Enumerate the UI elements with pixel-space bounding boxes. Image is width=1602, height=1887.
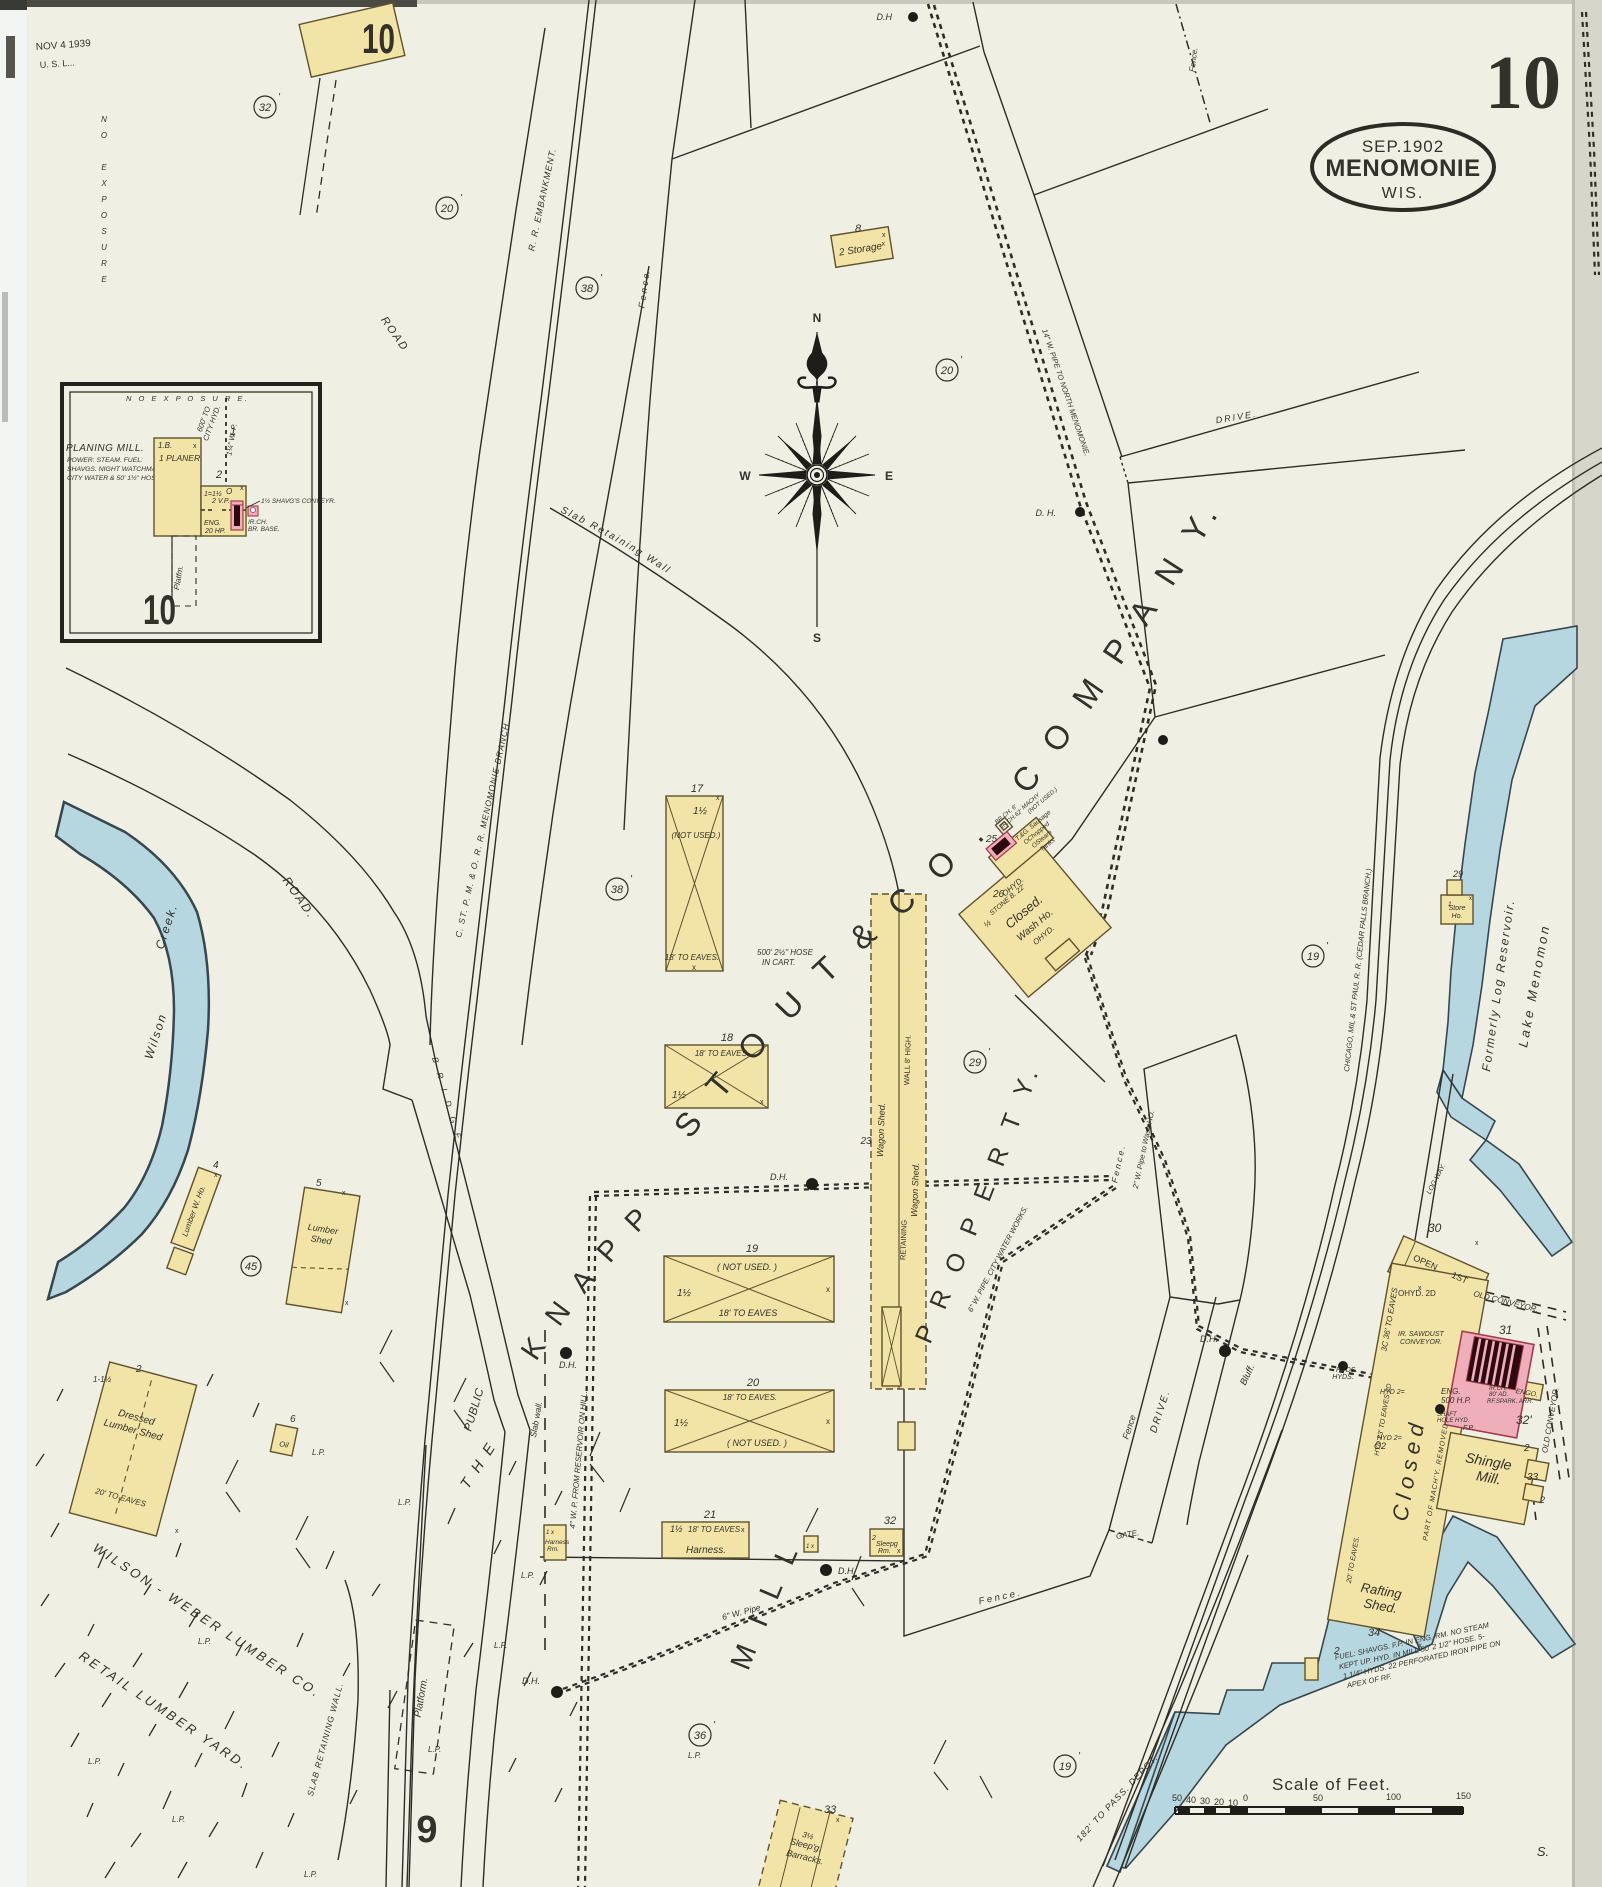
svg-text:CITY WATER & 50' 1½" HOSE.: CITY WATER & 50' 1½" HOSE. — [67, 474, 162, 482]
svg-text:BR. BASE.: BR. BASE. — [248, 526, 280, 533]
svg-text:O: O — [101, 131, 107, 140]
svg-text:ENG.: ENG. — [1441, 1387, 1461, 1396]
svg-text:29: 29 — [968, 1057, 981, 1069]
svg-text:29: 29 — [1452, 869, 1463, 879]
svg-text:Wagon Shed.: Wagon Shed. — [875, 1103, 887, 1158]
svg-text:L.P.: L.P. — [494, 1641, 507, 1650]
svg-text:S: S — [813, 631, 821, 645]
svg-text:IN CART.: IN CART. — [762, 958, 795, 967]
svg-text:17: 17 — [691, 783, 704, 795]
svg-text:45: 45 — [245, 1261, 258, 1273]
svg-text:x: x — [882, 232, 886, 239]
svg-text:32: 32 — [259, 102, 271, 114]
svg-text:N O E X P O S U R E.: N O E X P O S U R E. — [126, 394, 250, 403]
svg-text:L.P.: L.P. — [198, 1637, 211, 1646]
svg-text:POWER: STEAM. FUEL:: POWER: STEAM. FUEL: — [67, 457, 143, 464]
svg-text:18' TO EAVES: 18' TO EAVES — [688, 1525, 741, 1534]
svg-text:9: 9 — [416, 1809, 437, 1851]
svg-text:L.P.: L.P. — [428, 1745, 441, 1754]
svg-text:30: 30 — [1428, 1221, 1442, 1235]
svg-text:30: 30 — [1200, 1796, 1210, 1806]
svg-text:1 x: 1 x — [806, 1544, 815, 1550]
svg-text:1.B.: 1.B. — [158, 441, 172, 450]
svg-text:S: S — [101, 227, 107, 236]
svg-text:18' TO EAVES.: 18' TO EAVES. — [695, 1049, 749, 1058]
svg-text:x: x — [193, 443, 197, 450]
svg-text:D.H.: D.H. — [770, 1172, 788, 1182]
svg-text:2: 2 — [1539, 1495, 1545, 1505]
svg-text:19: 19 — [1059, 1761, 1071, 1773]
svg-text:Scale of Feet.: Scale of Feet. — [1272, 1775, 1391, 1794]
svg-text:S.: S. — [1537, 1844, 1549, 1859]
svg-text:x: x — [836, 1817, 840, 1824]
svg-text:x: x — [692, 963, 696, 972]
svg-text:PLANING MILL.: PLANING MILL. — [66, 443, 144, 454]
svg-text:10: 10 — [143, 586, 176, 633]
svg-text:20: 20 — [746, 1377, 760, 1389]
svg-text:D.H.: D.H. — [1200, 1334, 1218, 1344]
svg-text:1½ SHAVG'S CONVEYR.: 1½ SHAVG'S CONVEYR. — [261, 497, 336, 505]
svg-text:Sleepg: Sleepg — [876, 1541, 898, 1548]
svg-text:Harness.: Harness. — [686, 1545, 726, 1556]
svg-text:N: N — [101, 115, 107, 124]
svg-text:RETAINING: RETAINING — [898, 1219, 908, 1260]
svg-text:18' TO EAVES.: 18' TO EAVES. — [723, 1393, 777, 1402]
svg-text:36: 36 — [694, 1730, 707, 1742]
svg-text:33: 33 — [824, 1804, 837, 1816]
svg-text:2: 2 — [1333, 1646, 1340, 1657]
svg-text:x: x — [1469, 896, 1472, 902]
svg-text:D. H.: D. H. — [1035, 508, 1056, 518]
svg-text:40: 40 — [1186, 1795, 1196, 1805]
svg-text:L.P.: L.P. — [304, 1870, 317, 1879]
svg-text:21: 21 — [703, 1509, 716, 1521]
svg-text:P: P — [101, 195, 107, 204]
svg-text:25: 25 — [985, 834, 998, 845]
svg-text:SEP.1902: SEP.1902 — [1362, 137, 1444, 156]
svg-text:x: x — [1418, 1285, 1422, 1292]
svg-text:D.H: D.H — [838, 1566, 854, 1576]
svg-text:10: 10 — [362, 15, 395, 62]
svg-text:D.H.: D.H. — [559, 1360, 577, 1370]
svg-text:1-1½: 1-1½ — [93, 1375, 112, 1384]
svg-text:6: 6 — [290, 1414, 296, 1425]
svg-text:18' TO EAVES: 18' TO EAVES — [719, 1308, 778, 1318]
svg-text:L.P.: L.P. — [312, 1448, 325, 1457]
svg-text:150: 150 — [1456, 1791, 1471, 1801]
svg-text:20 HP.: 20 HP. — [204, 528, 226, 535]
svg-text:5: 5 — [316, 1178, 322, 1189]
svg-text:D.H.: D.H. — [522, 1676, 540, 1686]
svg-text:E: E — [101, 275, 107, 284]
svg-text:38: 38 — [611, 884, 624, 896]
svg-text:HYDS.: HYDS. — [1332, 1374, 1353, 1381]
svg-text:L.P.: L.P. — [172, 1815, 185, 1824]
svg-text:X: X — [100, 179, 107, 188]
svg-text:0: 0 — [1243, 1793, 1248, 1803]
svg-text:4: 4 — [213, 1160, 219, 1171]
svg-text:2: 2 — [215, 469, 222, 481]
svg-text:19: 19 — [746, 1243, 758, 1255]
svg-text:HYD 2=: HYD 2= — [1380, 1389, 1405, 1396]
svg-text:33: 33 — [1527, 1472, 1539, 1483]
svg-text:80' AD.: 80' AD. — [1489, 1392, 1508, 1398]
svg-text:( NOT USED. ): ( NOT USED. ) — [727, 1438, 787, 1448]
svg-text:x: x — [1418, 1641, 1422, 1650]
svg-text:WIS.: WIS. — [1382, 185, 1425, 202]
svg-text:1½: 1½ — [677, 1288, 692, 1299]
svg-text:500 H.P.: 500 H.P. — [1441, 1396, 1471, 1405]
svg-text:O2: O2 — [1374, 1441, 1386, 1451]
svg-text:20: 20 — [440, 203, 454, 215]
svg-text:CONVEYOR.: CONVEYOR. — [1400, 1339, 1442, 1346]
svg-text:x: x — [826, 1417, 830, 1426]
svg-text:L.P.: L.P. — [398, 1498, 411, 1507]
svg-text:L.P.: L.P. — [88, 1757, 101, 1766]
svg-text:WALL 8' HIGH.: WALL 8' HIGH. — [902, 1035, 913, 1086]
svg-text:x: x — [342, 1190, 346, 1197]
svg-text:38: 38 — [581, 283, 594, 295]
svg-text:R: R — [101, 259, 107, 268]
svg-text:Ho.: Ho. — [1452, 913, 1463, 920]
svg-text:Rm.: Rm. — [547, 1546, 559, 1553]
svg-text:x: x — [175, 1528, 179, 1535]
svg-text:19: 19 — [1307, 951, 1319, 963]
svg-text:MENOMONIE: MENOMONIE — [1325, 155, 1480, 182]
svg-text:1½: 1½ — [693, 806, 708, 817]
svg-text:IR.CH.: IR.CH. — [248, 519, 268, 526]
svg-text:10: 10 — [1485, 41, 1561, 125]
svg-text:( NOT USED. ): ( NOT USED. ) — [717, 1262, 777, 1272]
svg-text:E: E — [101, 163, 107, 172]
svg-text:O: O — [226, 487, 232, 496]
svg-text:500' 2½" HOSE: 500' 2½" HOSE — [757, 948, 814, 957]
svg-text:Rm.: Rm. — [878, 1548, 891, 1555]
svg-text:x: x — [741, 1527, 745, 1534]
svg-text:26: 26 — [992, 889, 1005, 900]
svg-text:x: x — [826, 1285, 830, 1294]
svg-text:L.P.: L.P. — [521, 1571, 534, 1580]
svg-text:(NOT USED.): (NOT USED.) — [672, 831, 721, 840]
svg-text:Store: Store — [1449, 905, 1466, 912]
svg-text:x: x — [1475, 1240, 1479, 1247]
svg-text:OHYD. 2D: OHYD. 2D — [1398, 1289, 1436, 1298]
svg-text:E: E — [885, 469, 893, 483]
svg-text:1 PLANER.: 1 PLANER. — [159, 453, 202, 463]
svg-text:x: x — [214, 1172, 218, 1179]
svg-text:23: 23 — [859, 1136, 872, 1147]
svg-text:N: N — [813, 311, 822, 325]
svg-text:SHAVGS. NIGHT WATCHMAN.: SHAVGS. NIGHT WATCHMAN. — [67, 466, 163, 473]
svg-text:HOLE HYD.: HOLE HYD. — [1437, 1418, 1469, 1424]
svg-text:50: 50 — [1313, 1793, 1323, 1803]
svg-text:34: 34 — [1368, 1627, 1380, 1639]
svg-text:20: 20 — [940, 365, 954, 377]
svg-text:2: 2 — [1523, 1443, 1530, 1454]
svg-text:x: x — [897, 1548, 901, 1555]
svg-text:20: 20 — [1214, 1797, 1224, 1807]
svg-text:O: O — [101, 211, 107, 220]
svg-text:1½: 1½ — [674, 1418, 689, 1429]
svg-text:1½: 1½ — [672, 1090, 687, 1101]
svg-text:50: 50 — [1172, 1793, 1182, 1803]
svg-text:18' TO EAVES.: 18' TO EAVES. — [665, 953, 719, 962]
svg-text:x: x — [240, 485, 244, 492]
svg-text:1½: 1½ — [670, 1524, 683, 1534]
svg-text:32': 32' — [1516, 1413, 1532, 1427]
svg-text:x: x — [716, 795, 720, 802]
svg-text:100: 100 — [1386, 1792, 1401, 1802]
svg-text:W: W — [739, 469, 751, 483]
svg-text:D.H: D.H — [877, 12, 893, 22]
svg-text:18: 18 — [721, 1032, 734, 1044]
svg-text:32: 32 — [884, 1515, 896, 1527]
svg-text:1=1½: 1=1½ — [204, 490, 222, 498]
svg-text:U: U — [101, 243, 107, 252]
svg-text:Wagon Shed.: Wagon Shed. — [909, 1163, 921, 1218]
svg-text:Harness: Harness — [545, 1539, 570, 1546]
svg-text:F.P.: F.P. — [1463, 1425, 1474, 1432]
svg-text:1: 1 — [230, 426, 236, 438]
svg-text:1 x: 1 x — [546, 1530, 555, 1536]
svg-text:31: 31 — [1499, 1323, 1512, 1337]
svg-text:2: 2 — [135, 1364, 142, 1375]
svg-text:x: x — [345, 1300, 349, 1307]
svg-text:x: x — [760, 1099, 764, 1106]
svg-text:RF.SPARK. ARR.: RF.SPARK. ARR. — [1487, 1399, 1533, 1405]
svg-text:2 V.P.: 2 V.P. — [211, 498, 230, 505]
svg-text:ENG.: ENG. — [204, 520, 221, 527]
svg-text:IR. SAWDUST: IR. SAWDUST — [1398, 1331, 1444, 1338]
svg-text:L.P.: L.P. — [688, 1751, 701, 1760]
svg-text:8: 8 — [855, 223, 862, 235]
